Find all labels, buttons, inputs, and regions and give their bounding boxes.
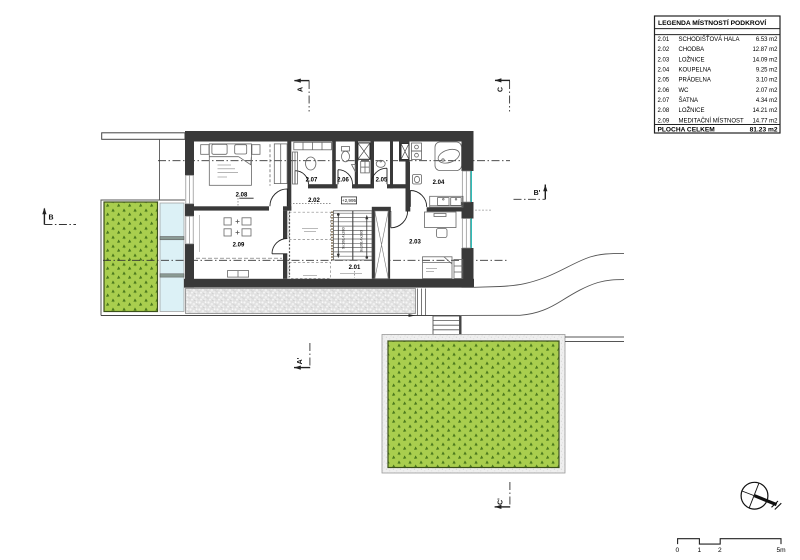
svg-text:3.10 m2: 3.10 m2 (756, 78, 778, 84)
svg-text:2.03: 2.03 (409, 240, 421, 246)
svg-text:LEGENDA MÍSTNOSTÍ PODKROVÍ: LEGENDA MÍSTNOSTÍ PODKROVÍ (658, 18, 766, 27)
svg-text:81.23 m2: 81.23 m2 (750, 127, 778, 134)
svg-text:2.01: 2.01 (349, 265, 361, 271)
svg-text:2.06: 2.06 (658, 88, 670, 94)
svg-text:ŠATNA: ŠATNA (679, 97, 699, 104)
svg-text:2.09: 2.09 (233, 243, 245, 249)
svg-text:2.07: 2.07 (306, 178, 318, 184)
svg-text:14.21 m2: 14.21 m2 (752, 108, 778, 114)
svg-text:A': A' (297, 357, 304, 364)
svg-text:PLOCHA CELKEM: PLOCHA CELKEM (658, 127, 716, 134)
svg-text:2.04: 2.04 (433, 180, 445, 186)
svg-text:A: A (298, 87, 305, 92)
svg-text:LOŽNICE: LOŽNICE (679, 106, 705, 114)
svg-text:WC: WC (679, 88, 690, 94)
svg-text:2.08: 2.08 (658, 108, 670, 114)
svg-text:12.87 m2: 12.87 m2 (752, 47, 778, 53)
svg-text:2.04: 2.04 (658, 68, 670, 74)
svg-text:5m: 5m (777, 547, 787, 554)
svg-text:PRÁDELNA: PRÁDELNA (679, 77, 711, 84)
svg-text:9.25 m2: 9.25 m2 (756, 68, 778, 74)
svg-text:KOUPELNA: KOUPELNA (679, 68, 712, 74)
svg-text:2.09: 2.09 (658, 118, 670, 124)
svg-text:CHODBA: CHODBA (679, 47, 705, 53)
svg-text:2: 2 (718, 547, 722, 554)
svg-text:LOŽNICE: LOŽNICE (679, 55, 705, 63)
svg-text:2.05: 2.05 (658, 78, 670, 84)
svg-text:2.08: 2.08 (236, 193, 248, 199)
svg-text:2.05: 2.05 (376, 178, 388, 184)
svg-text:SCHODIŠŤOVÁ HALA: SCHODIŠŤOVÁ HALA (679, 35, 740, 43)
svg-text:2.07: 2.07 (658, 98, 670, 104)
svg-text:MEDITAČNÍ MÍSTNOST: MEDITAČNÍ MÍSTNOST (679, 117, 745, 124)
svg-text:2.06: 2.06 (337, 178, 349, 184)
svg-text:C: C (498, 87, 505, 92)
svg-text:1: 1 (698, 547, 702, 554)
svg-text:2.03: 2.03 (658, 57, 670, 63)
svg-text:9x168,4x280: 9x168,4x280 (342, 227, 346, 249)
svg-text:0: 0 (676, 547, 680, 554)
svg-text:C': C' (498, 498, 505, 505)
svg-text:B: B (48, 215, 53, 222)
svg-text:2.02: 2.02 (658, 47, 670, 53)
svg-text:9x168,4x280: 9x168,4x280 (359, 230, 363, 252)
svg-text:14.09 m2: 14.09 m2 (752, 57, 778, 63)
svg-text:6.53 m2: 6.53 m2 (756, 37, 778, 43)
svg-text:2.02: 2.02 (308, 198, 320, 204)
svg-text:4.34 m2: 4.34 m2 (756, 98, 778, 104)
svg-text:B': B' (534, 190, 541, 197)
svg-text:2.01: 2.01 (658, 37, 670, 43)
svg-text:14.77 m2: 14.77 m2 (752, 118, 778, 124)
svg-text:2.07 m2: 2.07 m2 (756, 88, 778, 94)
svg-text:+2,995: +2,995 (342, 198, 357, 203)
